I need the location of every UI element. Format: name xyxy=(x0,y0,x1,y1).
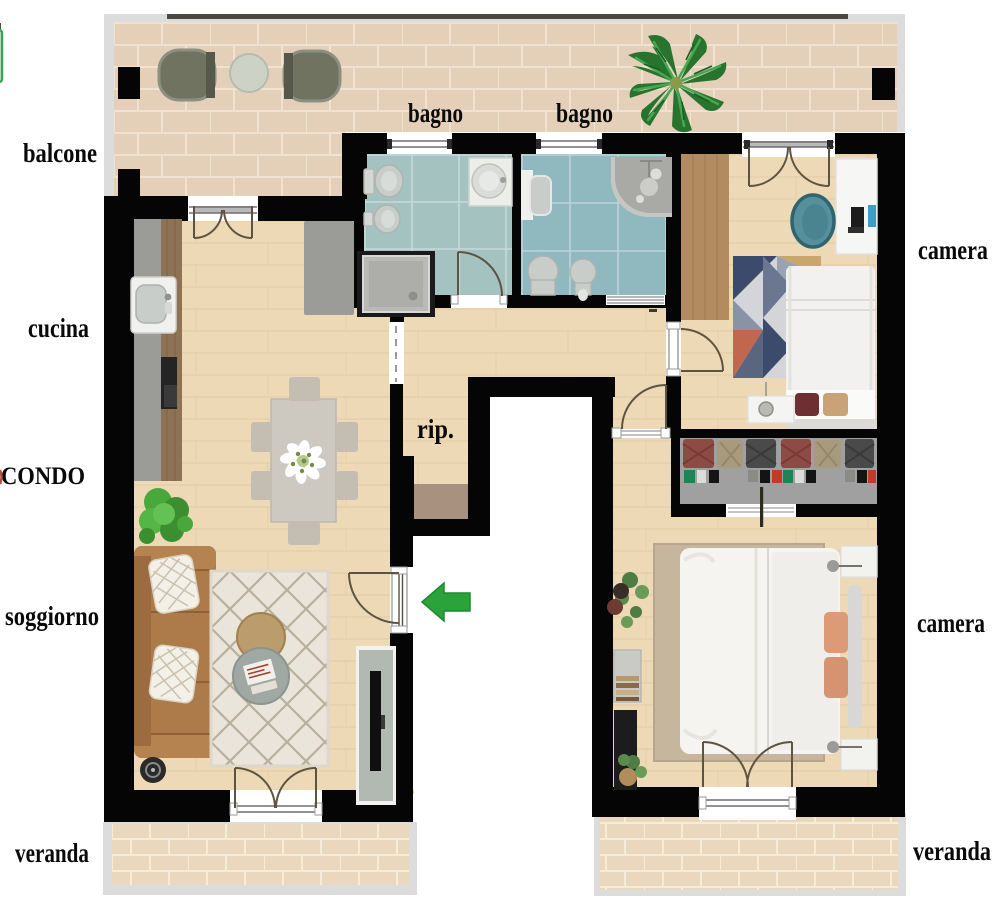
svg-text:bagno: bagno xyxy=(408,98,463,128)
svg-text:veranda: veranda xyxy=(15,838,89,868)
svg-text:cucina: cucina xyxy=(28,313,89,343)
svg-text:bagno: bagno xyxy=(556,98,613,128)
svg-text:balcone: balcone xyxy=(23,138,97,168)
svg-text:veranda: veranda xyxy=(913,836,991,866)
svg-text:camera: camera xyxy=(917,608,985,638)
svg-text:camera: camera xyxy=(918,235,988,265)
svg-text:CONDO: CONDO xyxy=(1,463,85,490)
svg-text:soggiorno: soggiorno xyxy=(5,601,99,631)
svg-text:rip.: rip. xyxy=(417,414,454,444)
